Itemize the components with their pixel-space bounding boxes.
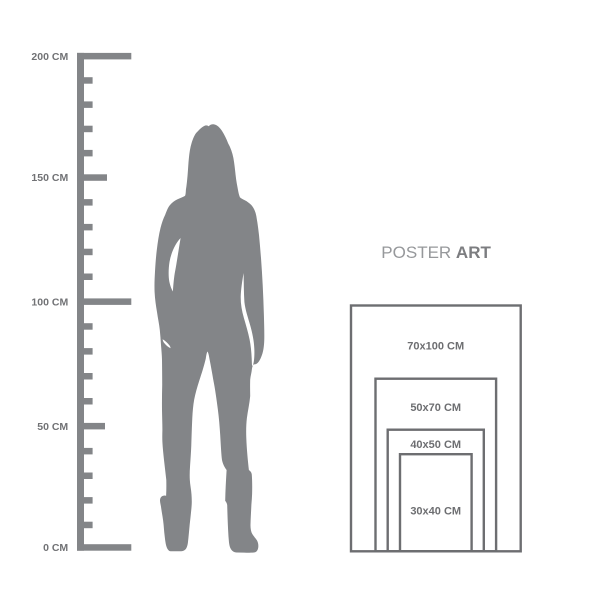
svg-text:30x40 CM: 30x40 CM [410, 505, 461, 517]
svg-text:150 CM: 150 CM [31, 172, 68, 184]
svg-text:50 CM: 50 CM [37, 421, 68, 433]
svg-text:70x100 CM: 70x100 CM [407, 340, 464, 352]
svg-text:40x50 CM: 40x50 CM [410, 439, 461, 451]
svg-text:100 CM: 100 CM [31, 296, 68, 308]
svg-text:200 CM: 200 CM [31, 51, 68, 63]
svg-text:POSTER ART: POSTER ART [381, 243, 491, 262]
svg-text:0 CM: 0 CM [43, 542, 68, 554]
svg-text:50x70 CM: 50x70 CM [410, 402, 461, 414]
